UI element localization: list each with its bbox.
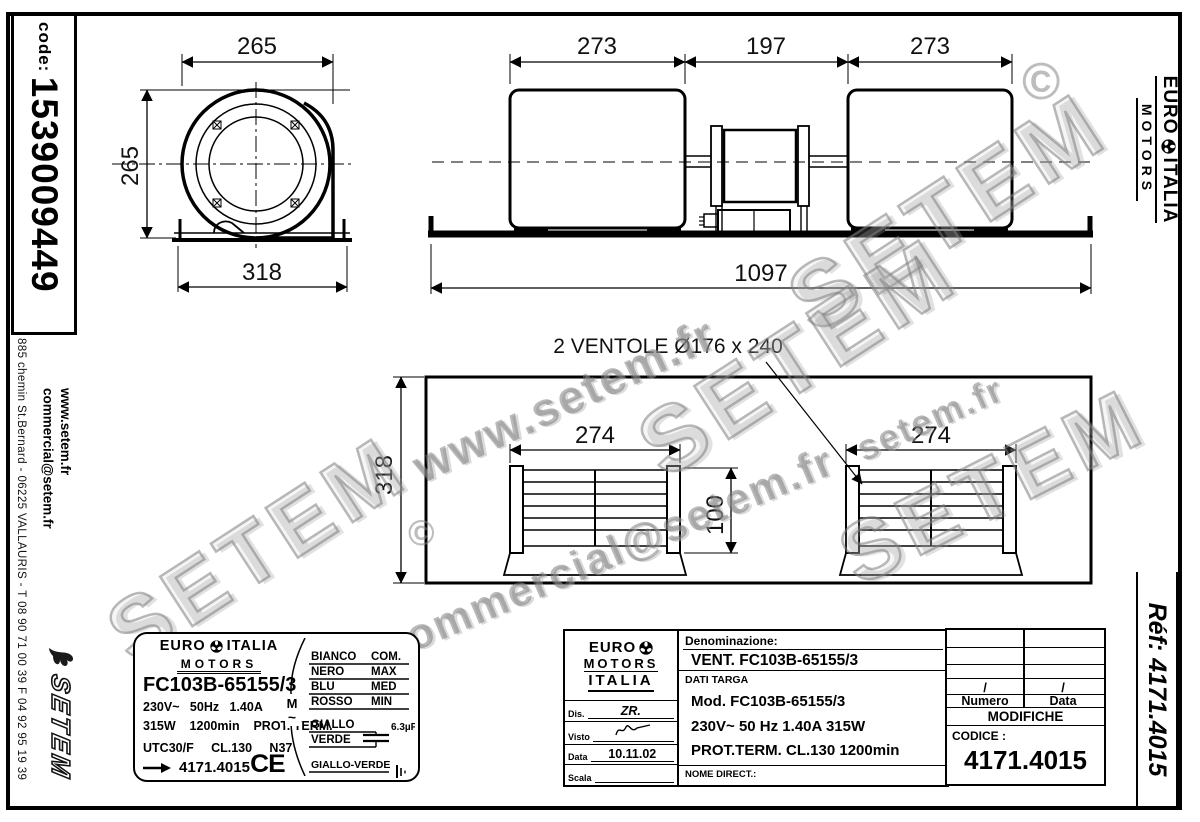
codice-value: 4171.4015 xyxy=(947,745,1104,776)
brand-euro: EURO xyxy=(589,639,636,656)
dis-label: Dis. xyxy=(568,709,585,719)
label-code-value: 4171.4015 xyxy=(179,760,250,777)
wire-speed: MAX xyxy=(371,666,397,678)
dim-top-height: 318 xyxy=(371,455,398,495)
titleblock-brand-logo: EURO MOTORS ITALIA xyxy=(565,631,677,700)
motor-tilde: ~ xyxy=(288,709,296,725)
nome-direct-label: NOME DIRECT.: xyxy=(685,769,756,780)
brand-euro: EURO xyxy=(1158,76,1180,135)
setem-logo: SETEM xyxy=(38,645,84,805)
wire-color: GIALLO xyxy=(311,719,354,731)
brand-motors: MOTORS xyxy=(1136,98,1155,201)
label-code-row: 4171.4015 xyxy=(143,760,250,777)
denominazione-value: VENT. FC103B-65155/3 xyxy=(691,652,858,670)
brand-motors: MOTORS xyxy=(177,658,261,674)
dis-signature: ZR. xyxy=(588,704,674,719)
wiring-diagram: BIANCO COM. NERO MAX BLU MED ROSSO MIN G… xyxy=(305,638,415,778)
ce-mark: CE xyxy=(250,751,284,779)
dim-front-left: 273 xyxy=(577,33,617,60)
wire-color: BLU xyxy=(311,681,335,693)
label-model: FC103B-65155/3 xyxy=(143,674,296,696)
revision-slash: / xyxy=(947,680,1023,695)
setem-logo-text: SETEM xyxy=(46,672,77,783)
revision-slash: / xyxy=(1025,680,1101,695)
label-brand-logo: EURO ITALIA MOTORS xyxy=(145,639,293,674)
dim-grille-depth: 100 xyxy=(702,495,729,535)
data-value: 10.11.02 xyxy=(591,747,674,762)
codice-label: CODICE : xyxy=(952,729,1006,743)
data-label: Data xyxy=(568,752,588,762)
arrow-icon xyxy=(143,763,171,773)
contact-links: www.setem.fr commercial@setem.fr xyxy=(39,388,74,529)
fan-icon xyxy=(1162,139,1177,154)
code-value: 1539009449 xyxy=(24,77,65,293)
dim-side-left: 265 xyxy=(117,146,144,186)
scala-label: Scala xyxy=(568,773,592,783)
visto-signature xyxy=(613,722,653,738)
dim-front-total: 1097 xyxy=(734,260,787,287)
top-view-title: 2 VENTOLE Ø176 x 240 xyxy=(553,335,783,358)
wire-color: GIALLO-VERDE xyxy=(311,759,390,771)
dim-front-mid: 197 xyxy=(746,33,786,60)
wire-color: VERDE xyxy=(311,734,351,746)
data-header: Data xyxy=(1025,694,1101,708)
dim-grille-left: 274 xyxy=(575,422,615,449)
visto-label: Visto xyxy=(568,732,590,742)
protection-data: PROT.TERM. CL.130 1200min xyxy=(691,742,899,759)
dim-grille-right: 274 xyxy=(911,422,951,449)
address-text: 885 chemin St.Bernard - 06225 VALLAURIS … xyxy=(15,338,27,780)
brand-motors: MOTORS xyxy=(584,657,659,673)
brand-italia: ITALIA xyxy=(588,672,653,691)
dim-side-bottom: 318 xyxy=(242,259,282,286)
fan-icon xyxy=(639,641,653,655)
capacitor-symbol xyxy=(363,732,389,747)
setem-bird-icon xyxy=(46,645,76,669)
numero-header: Numero xyxy=(947,694,1023,708)
capacitor-value: 6.3µF xyxy=(391,722,415,733)
code-label: code: xyxy=(35,22,54,72)
title-block: EURO MOTORS ITALIA Dis. ZR. Visto Data 1 xyxy=(563,629,949,787)
rating-label: EURO ITALIA MOTORS FC103B-65155/3 230V~ … xyxy=(133,632,420,782)
email-link: commercial@setem.fr xyxy=(41,388,56,529)
scala-value xyxy=(595,782,674,783)
wire-speed: MED xyxy=(371,681,397,693)
dati-targa-label: DATI TARGA xyxy=(685,674,748,686)
dim-front-right: 273 xyxy=(910,33,950,60)
dim-side-top: 265 xyxy=(237,33,277,60)
modifiche-header: MODIFICHE xyxy=(947,709,1104,724)
code-box: code: 1539009449 xyxy=(11,13,77,335)
revisions-block: / / Numero Data MODIFICHE CODICE : 4171.… xyxy=(945,628,1106,786)
euro-motors-italia-logo: EURO ITALIA MOTORS xyxy=(1128,42,1180,257)
brand-italia: ITALIA xyxy=(1158,158,1180,224)
datasheet-page: © SETEM SETEM SETEM SETEM www.setem.fr c… xyxy=(0,0,1200,822)
electrical-data: 230V~ 50 Hz 1.40A 315W xyxy=(691,718,865,735)
website-link: www.setem.fr xyxy=(58,388,73,475)
front-view-drawing xyxy=(428,54,1093,294)
ref-number: Réf: 4171.4015 xyxy=(1136,572,1178,807)
wire-color: NERO xyxy=(311,666,344,678)
wire-color: BIANCO xyxy=(311,651,356,663)
ground-symbol xyxy=(397,765,405,778)
wire-speed: COM. xyxy=(371,651,401,663)
side-view-drawing xyxy=(112,54,352,292)
denominazione-label: Denominazione: xyxy=(685,634,778,648)
mod-value: Mod. FC103B-65155/3 xyxy=(691,693,845,710)
label-electrical: 230V~ 50Hz 1.40A xyxy=(143,701,263,715)
brand-italia: ITALIA xyxy=(227,639,279,655)
wire-color: ROSSO xyxy=(311,696,353,708)
wire-speed: MIN xyxy=(371,696,392,708)
brand-euro: EURO xyxy=(160,639,206,655)
top-view-drawing xyxy=(393,362,1091,583)
fan-icon xyxy=(210,640,223,653)
